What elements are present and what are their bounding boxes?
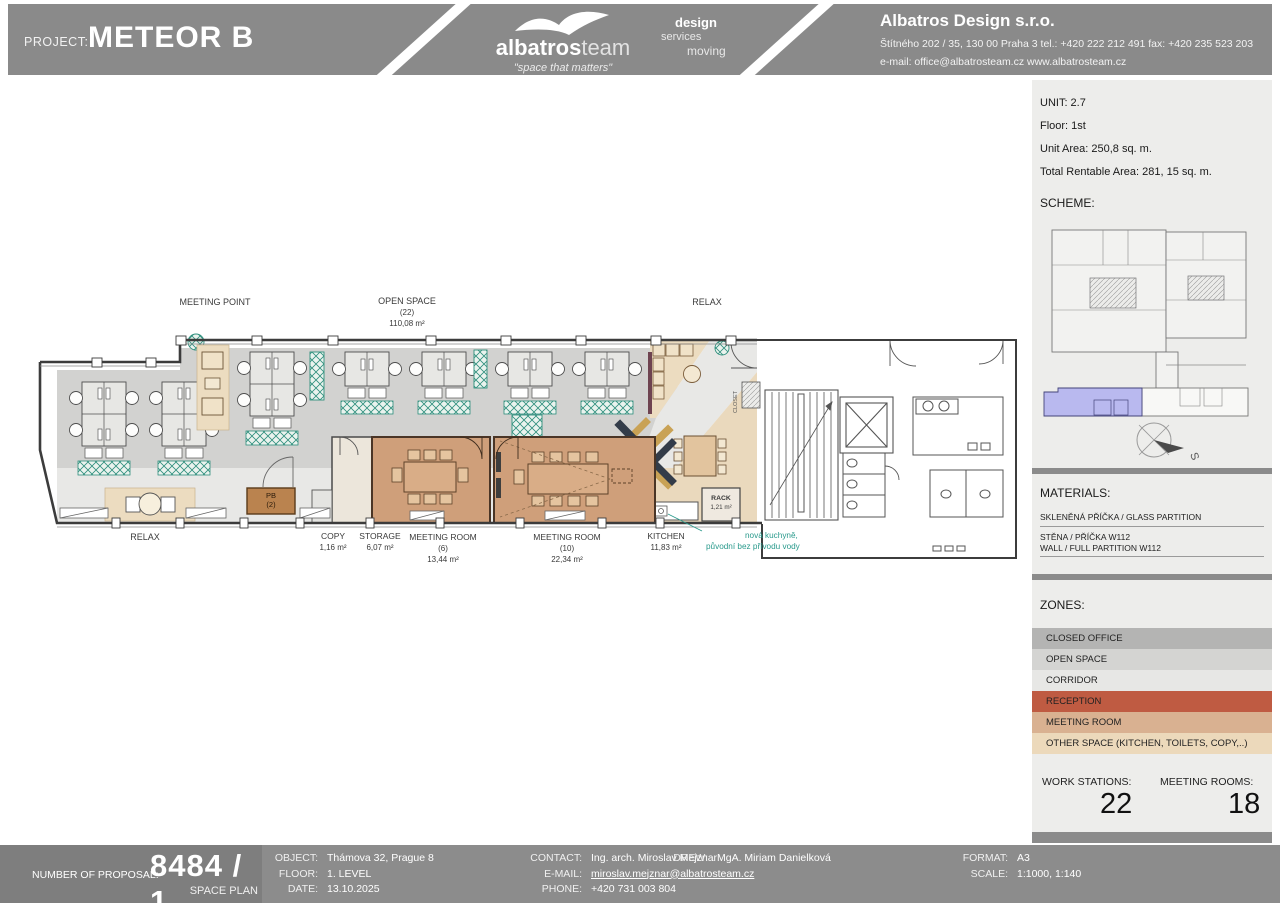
divider-bar xyxy=(1032,832,1272,843)
service-design: design xyxy=(675,16,763,30)
email-label: E-MAIL: xyxy=(514,868,582,880)
drew-value: MgA. Miriam Danielková xyxy=(717,852,831,864)
proposal-label: NUMBER OF PROPOSAL: xyxy=(32,869,159,881)
storage-room xyxy=(332,437,372,523)
scale-value: 1:1000, 1:140 xyxy=(1017,868,1081,880)
phone-label: PHONE: xyxy=(514,883,582,895)
materials-label: MATERIALS: xyxy=(1040,486,1110,500)
material-item: STĚNA / PŘÍČKA W112 WALL / FULL PARTITIO… xyxy=(1040,532,1264,557)
label-mr10-count: (10) xyxy=(560,544,575,553)
label-pb-count: (2) xyxy=(266,500,276,509)
floor-value: 1. LEVEL xyxy=(327,868,434,880)
zone-label: OPEN SPACE xyxy=(1046,654,1107,665)
zone-reception: RECEPTION xyxy=(1032,691,1272,712)
company-address: Štítného 202 / 35, 130 00 Praha 3 tel.: … xyxy=(880,38,1253,50)
phone-value: +420 731 003 804 xyxy=(591,883,754,895)
toilets xyxy=(843,397,1003,551)
label-mr10: MEETING ROOM xyxy=(533,532,601,542)
relax-area-seating xyxy=(105,488,195,521)
logo-tagline: "space that matters" xyxy=(478,62,648,74)
total-rentable-value: Total Rentable Area: 281, 15 sq. m. xyxy=(1040,166,1212,178)
albatrosteam-logo: albatrosteam "space that matters" xyxy=(478,6,648,74)
zone-meeting-room: MEETING ROOM xyxy=(1032,712,1272,733)
zone-label: MEETING ROOM xyxy=(1046,717,1121,728)
plant-icon xyxy=(474,350,487,388)
logo-bold: albatros xyxy=(496,35,582,60)
header-bar: PROJECT: METEOR B albatrosteam "space th… xyxy=(8,4,1272,75)
label-open-space-area: 110,08 m² xyxy=(389,319,425,328)
date-label: DATE: xyxy=(252,883,318,895)
zone-label: RECEPTION xyxy=(1046,696,1101,707)
title-block-footer: NUMBER OF PROPOSAL: 8484 / 1 SPACE PLAN … xyxy=(0,845,1280,903)
company-name: Albatros Design s.r.o. xyxy=(880,11,1253,31)
material-item: SKLENĚNÁ PŘÍČKA / GLASS PARTITION xyxy=(1040,512,1264,527)
label-rack-area: 1,21 m² xyxy=(710,504,731,511)
floor-plan-canvas: MEETING POINT OPEN SPACE (22) 110,08 m² … xyxy=(8,80,1028,842)
contact-label: CONTACT: xyxy=(514,852,582,864)
info-sidebar: UNIT: 2.7 Floor: 1st Unit Area: 250,8 sq… xyxy=(1032,80,1272,843)
elevator xyxy=(840,397,893,453)
scheme-label: SCHEME: xyxy=(1040,196,1095,210)
floor-label: FLOOR: xyxy=(252,868,318,880)
object-label: OBJECT: xyxy=(252,852,318,864)
company-block: Albatros Design s.r.o. Štítného 202 / 35… xyxy=(880,11,1253,68)
note-kitchen-line1: nová kuchyně, xyxy=(745,531,798,540)
zone-closed-office: CLOSED OFFICE xyxy=(1032,628,1272,649)
zone-open-space: OPEN SPACE xyxy=(1032,649,1272,670)
date-value: 13.10.2025 xyxy=(327,883,434,895)
scheme-unit-highlight xyxy=(1044,388,1142,416)
label-kitchen: KITCHEN xyxy=(647,531,684,541)
zone-label: CLOSED OFFICE xyxy=(1046,633,1123,644)
company-email[interactable]: e-mail: office@albatrosteam.cz www.albat… xyxy=(880,56,1253,68)
project-label: PROJECT: xyxy=(24,35,88,49)
desk-cluster xyxy=(70,382,139,475)
label-meeting-point: MEETING POINT xyxy=(179,297,251,307)
service-services: services xyxy=(661,30,763,44)
label-closet: CLOSET xyxy=(733,390,739,413)
plant-icon xyxy=(512,415,542,437)
proposal-block: NUMBER OF PROPOSAL: 8484 / 1 SPACE PLAN xyxy=(0,845,262,903)
work-stations-label: WORK STATIONS: xyxy=(1042,776,1131,788)
note-kitchen-line2: původní bez přívodu vody xyxy=(706,541,801,551)
object-value: Thámova 32, Prague 8 xyxy=(327,852,434,864)
label-open-space: OPEN SPACE xyxy=(378,296,436,306)
logo-light: team xyxy=(581,35,630,60)
label-mr10-area: 22,34 m² xyxy=(551,555,583,564)
meeting-rooms-label: MEETING ROOMS: xyxy=(1160,776,1253,788)
label-relax-bottom: RELAX xyxy=(130,532,160,542)
drew-fields: DREW:MgA. Miriam Danielková xyxy=(660,852,831,864)
object-fields: OBJECT:Thámova 32, Prague 8 FLOOR:1. LEV… xyxy=(252,852,434,895)
material-text: SKLENĚNÁ PŘÍČKA / GLASS PARTITION xyxy=(1040,512,1264,523)
label-mr6-count: (6) xyxy=(438,544,448,553)
header-divider-stripe xyxy=(361,4,482,75)
label-rack: RACK xyxy=(711,495,731,502)
full-partition-marker xyxy=(648,352,652,414)
proposal-type: SPACE PLAN xyxy=(148,885,258,897)
format-label: FORMAT: xyxy=(952,852,1008,864)
meeting-room-6 xyxy=(372,437,490,523)
material-text: WALL / FULL PARTITION W112 xyxy=(1040,543,1264,554)
scheme-thumbnail: S xyxy=(1038,220,1266,466)
label-kitchen-area: 11,83 m² xyxy=(651,543,682,552)
material-text: STĚNA / PŘÍČKA W112 xyxy=(1040,532,1264,543)
label-open-space-count: (22) xyxy=(400,308,415,317)
format-value: A3 xyxy=(1017,852,1081,864)
zone-label: OTHER SPACE (KITCHEN, TOILETS, COPY,..) xyxy=(1046,738,1247,749)
zone-other-space: OTHER SPACE (KITCHEN, TOILETS, COPY,..) xyxy=(1032,733,1272,754)
label-mr6-area: 13,44 m² xyxy=(427,555,459,564)
relax-corner-table xyxy=(684,366,701,383)
label-copy: COPY xyxy=(321,531,345,541)
unit-area-value: Unit Area: 250,8 sq. m. xyxy=(1040,143,1152,155)
scale-label: SCALE: xyxy=(952,868,1008,880)
work-stations-count: 22 xyxy=(1100,788,1132,821)
zone-label: CORRIDOR xyxy=(1046,675,1098,686)
divider-bar xyxy=(1032,468,1272,474)
drew-label: DREW: xyxy=(660,852,708,864)
label-storage-area: 6,07 m² xyxy=(366,543,393,552)
email-link[interactable]: miroslav.mejznar@albatrosteam.cz xyxy=(591,868,754,880)
meeting-room-10 xyxy=(494,437,655,523)
label-mr6: MEETING ROOM xyxy=(409,532,477,542)
compass-south-label: S xyxy=(1187,451,1201,462)
bird-icon xyxy=(511,9,615,37)
plant-icon xyxy=(310,352,324,400)
format-fields: FORMAT:A3 SCALE:1:1000, 1:140 xyxy=(952,852,1081,880)
label-storage: STORAGE xyxy=(359,531,401,541)
zone-corridor: CORRIDOR xyxy=(1032,670,1272,691)
compass-icon: S xyxy=(1137,423,1201,462)
floor-plan-drawing: MEETING POINT OPEN SPACE (22) 110,08 m² … xyxy=(8,80,1028,842)
zones-label: ZONES: xyxy=(1040,598,1085,612)
space-plan-sheet: PROJECT: METEOR B albatrosteam "space th… xyxy=(0,0,1280,905)
label-relax-top: RELAX xyxy=(692,297,722,307)
desk-cluster xyxy=(238,352,307,445)
label-pb: PB xyxy=(266,491,276,500)
staircase xyxy=(765,390,838,520)
service-moving: moving xyxy=(687,44,763,58)
unit-value: UNIT: 2.7 xyxy=(1040,97,1086,109)
floor-value: Floor: 1st xyxy=(1040,120,1086,132)
meeting-rooms-count: 18 xyxy=(1228,788,1260,821)
closet-cabinet xyxy=(742,382,760,408)
meeting-point-seating xyxy=(197,345,229,430)
services-block: design services moving xyxy=(653,16,763,58)
logo-wordmark: albatrosteam xyxy=(478,37,648,59)
divider-bar xyxy=(1032,574,1272,580)
label-copy-area: 1,16 m² xyxy=(319,543,346,552)
project-name: METEOR B xyxy=(88,21,254,55)
